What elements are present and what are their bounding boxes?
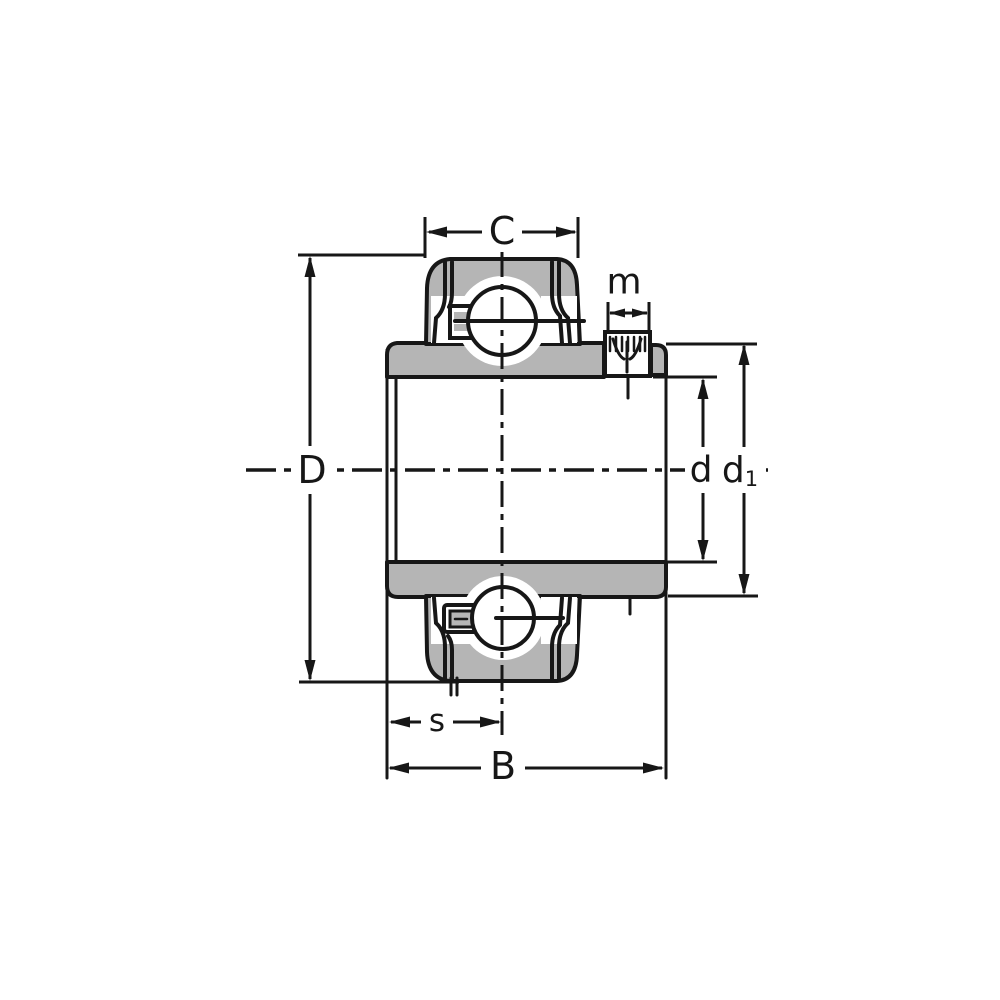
label-m: m	[606, 262, 641, 303]
label-D: D	[297, 448, 326, 492]
drawing-background	[0, 0, 1000, 1000]
label-B: B	[490, 744, 516, 788]
label-s: s	[429, 703, 445, 739]
label-d: d	[690, 450, 713, 491]
bearing-engineering-drawing: C m D d d1 s B	[0, 0, 1000, 1000]
inner-ring-collar-top	[651, 345, 666, 375]
label-C: C	[489, 209, 516, 253]
